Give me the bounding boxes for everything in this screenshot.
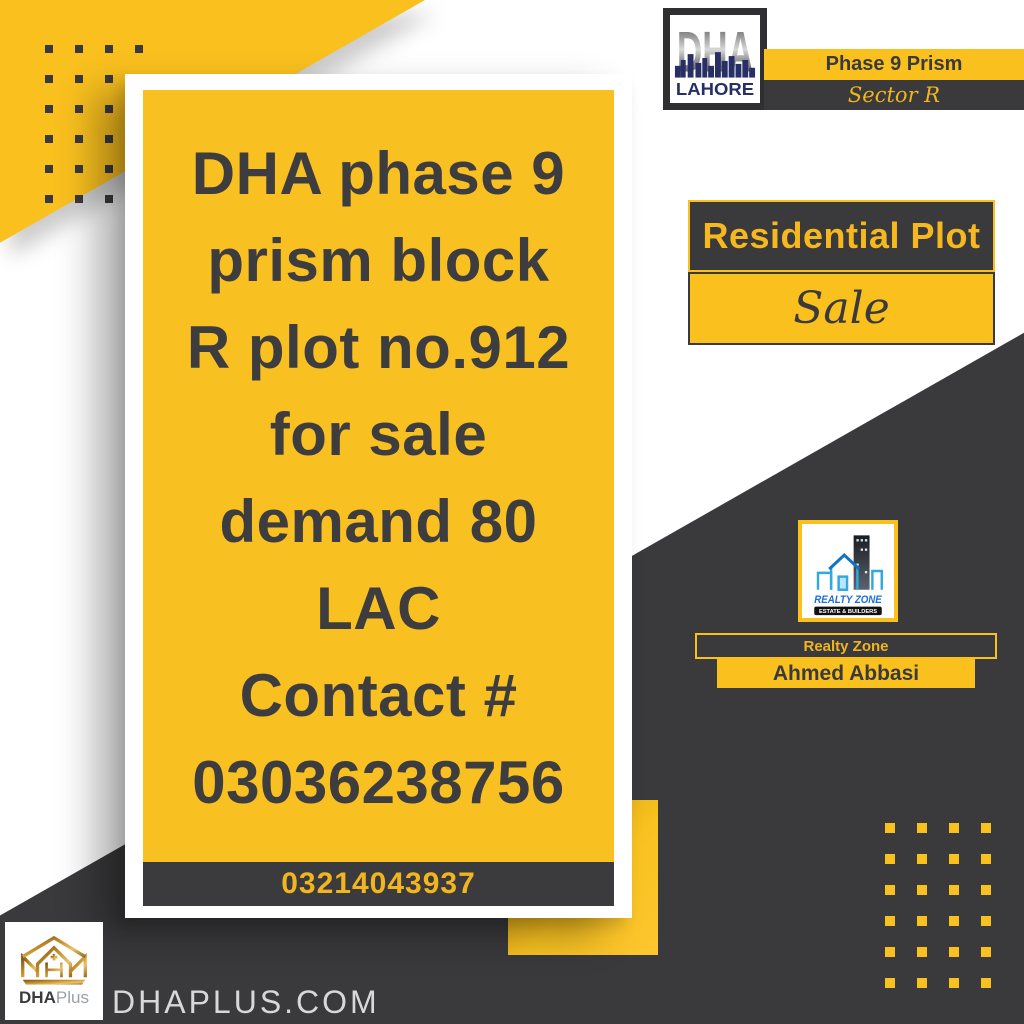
pattern-dot <box>885 854 895 864</box>
dhaplus-text-bold: DHA <box>19 988 56 1007</box>
pattern-dot <box>105 105 113 113</box>
dhaplus-crown-icon <box>17 934 91 986</box>
pattern-dot <box>917 885 927 895</box>
pattern-dot <box>917 916 927 926</box>
pattern-dot <box>45 135 53 143</box>
agent-company-bar: Realty Zone <box>695 633 997 659</box>
dhaplus-logo: DHAPlus <box>5 922 103 1020</box>
pattern-dot <box>75 75 83 83</box>
pattern-dot <box>885 916 895 926</box>
pattern-dot <box>75 45 83 53</box>
pattern-dot <box>981 978 991 988</box>
dhaplus-logo-text: DHAPlus <box>19 988 89 1008</box>
phase-label: Phase 9 Prism <box>826 53 963 76</box>
pattern-dot <box>917 978 927 988</box>
pattern-dot <box>105 75 113 83</box>
sector-banner: Sector R <box>764 80 1024 110</box>
listing-status-label: Sale <box>793 283 890 334</box>
listing-line: LAC <box>143 565 614 652</box>
listing-card-body: DHA phase 9 prism block R plot no.912 fo… <box>143 90 614 862</box>
listing-line: prism block <box>143 217 614 304</box>
listing-line: R plot no.912 <box>143 304 614 391</box>
realty-logo-tagline: ESTATE & BUILDERS <box>819 609 877 615</box>
pattern-dot <box>75 165 83 173</box>
pattern-dot <box>981 823 991 833</box>
pattern-dot <box>949 823 959 833</box>
pattern-dot <box>105 195 113 203</box>
pattern-dot <box>917 947 927 957</box>
pattern-dot <box>75 195 83 203</box>
listing-line: for sale <box>143 391 614 478</box>
listing-line-phone: 03036238756 <box>143 739 614 826</box>
pattern-dot <box>75 135 83 143</box>
realty-zone-logo: REALTY ZONE ESTATE & BUILDERS <box>798 520 898 622</box>
pattern-dot <box>135 45 143 53</box>
pattern-dot <box>949 978 959 988</box>
pattern-dot <box>949 854 959 864</box>
pattern-dot <box>45 45 53 53</box>
pattern-dot <box>981 854 991 864</box>
pattern-dot <box>885 885 895 895</box>
pattern-dot <box>917 854 927 864</box>
pattern-dot <box>885 978 895 988</box>
pattern-dot <box>45 195 53 203</box>
pattern-dot <box>885 947 895 957</box>
pattern-dot <box>981 885 991 895</box>
listing-card: DHA phase 9 prism block R plot no.912 fo… <box>125 74 632 918</box>
listing-type-banner: Residential Plot <box>688 200 995 272</box>
dot-grid-bottomright <box>885 823 1001 989</box>
listing-text: DHA phase 9 prism block R plot no.912 fo… <box>143 90 614 826</box>
dha-skyline-icon: DHA LAHORE <box>672 17 758 101</box>
dhaplus-text-light: Plus <box>56 988 89 1007</box>
agent-name-bar: Ahmed Abbasi <box>717 659 975 688</box>
pattern-dot <box>45 105 53 113</box>
listing-status-banner: Sale <box>688 272 995 345</box>
sector-label: Sector R <box>848 83 940 107</box>
realty-zone-logo-icon: REALTY ZONE ESTATE & BUILDERS <box>804 526 892 616</box>
poster-canvas: DHA phase 9 prism block R plot no.912 fo… <box>0 0 1024 1024</box>
realty-logo-name: REALTY ZONE <box>814 594 882 606</box>
agent-name-label: Ahmed Abbasi <box>773 662 919 686</box>
card-footer-bar: 03214043937 <box>143 862 614 906</box>
pattern-dot <box>981 947 991 957</box>
pattern-dot <box>981 916 991 926</box>
pattern-dot <box>105 45 113 53</box>
dha-logo-subtitle: LAHORE <box>676 79 754 99</box>
pattern-dot <box>45 165 53 173</box>
listing-line: DHA phase 9 <box>143 130 614 217</box>
pattern-dot <box>105 165 113 173</box>
building-icon <box>854 535 870 589</box>
pattern-dot <box>949 885 959 895</box>
phase-banner: Phase 9 Prism <box>764 49 1024 80</box>
pattern-dot <box>949 916 959 926</box>
pattern-dot <box>917 823 927 833</box>
website-text: DHAPLUS.COM <box>112 984 380 1021</box>
pattern-dot <box>885 823 895 833</box>
pattern-dot <box>949 947 959 957</box>
dha-lahore-logo: DHA LAHORE <box>663 8 767 110</box>
pattern-dot <box>45 75 53 83</box>
listing-type-label: Residential Plot <box>702 215 980 257</box>
listing-line: Contact # <box>143 652 614 739</box>
pattern-dot <box>105 135 113 143</box>
agent-company-label: Realty Zone <box>803 638 888 655</box>
footer-phone: 03214043937 <box>281 867 476 901</box>
pattern-dot <box>75 105 83 113</box>
listing-line: demand 80 <box>143 478 614 565</box>
